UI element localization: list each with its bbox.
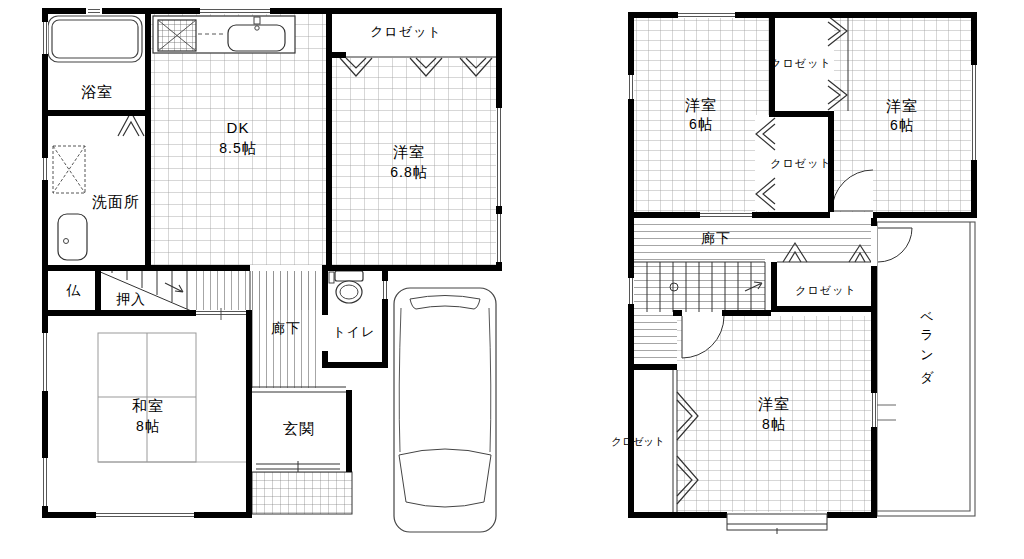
- floorplan-canvas: 浴室 洗面所 DK 8.5帖 クロゼット 洋室 6.8帖 仏 押入 廊下 トイレ…: [0, 0, 1024, 559]
- room-nw-floor: [634, 18, 769, 212]
- label-dk-size: 8.5帖: [219, 141, 256, 155]
- label-room-s: 洋室: [758, 396, 790, 411]
- floorplan-drawing: [0, 0, 1024, 559]
- label-closet-1f: クロゼット: [370, 25, 442, 38]
- tatami-lines: [98, 333, 246, 462]
- label-entrance: 玄関: [283, 421, 315, 436]
- car-icon: [394, 288, 496, 532]
- label-veranda: ベランダ: [921, 302, 934, 381]
- veranda-door-arc: [878, 228, 912, 262]
- label-washroom: 洗面所: [92, 194, 140, 209]
- washbasin-icon: [58, 214, 87, 260]
- label-hall-2f: 廊下: [701, 231, 731, 245]
- stairs-floor1: [98, 271, 196, 313]
- label-closet-sw: クロゼット: [611, 436, 665, 447]
- label-butsudan: 仏: [67, 283, 82, 297]
- label-room-ne-size: 6帖: [890, 118, 914, 132]
- toilet-icon: [329, 271, 363, 303]
- label-closet-top: クロゼット: [770, 58, 831, 69]
- washing-machine-icon: [53, 146, 85, 193]
- label-toilet: トイレ: [333, 325, 376, 338]
- porch-floor: [252, 472, 352, 514]
- label-bath: 浴室: [81, 84, 113, 99]
- label-washitsu-size: 8帖: [136, 419, 160, 433]
- bathtub-icon: [48, 16, 142, 62]
- label-closet-hall: クロゼット: [795, 285, 856, 296]
- label-west-room-size: 6.8帖: [390, 165, 427, 179]
- hall2-floor: [634, 218, 871, 258]
- label-west-room: 洋室: [393, 144, 425, 159]
- kitchen-counter-icon: [153, 16, 295, 53]
- bay-window: [727, 514, 827, 534]
- label-room-ne: 洋室: [886, 98, 918, 113]
- label-room-s-size: 8帖: [762, 417, 786, 431]
- label-oshiire: 押入: [116, 292, 146, 306]
- west-room-floor: [332, 58, 496, 265]
- hall2-lower-floor: [634, 312, 677, 364]
- label-room-nw: 洋室: [685, 97, 717, 112]
- label-dk: DK: [227, 120, 250, 135]
- label-hall-1f: 廊下: [271, 321, 301, 335]
- label-washitsu: 和室: [132, 398, 164, 413]
- label-room-nw-size: 6帖: [689, 117, 713, 131]
- label-closet-mid: クロゼット: [770, 158, 831, 169]
